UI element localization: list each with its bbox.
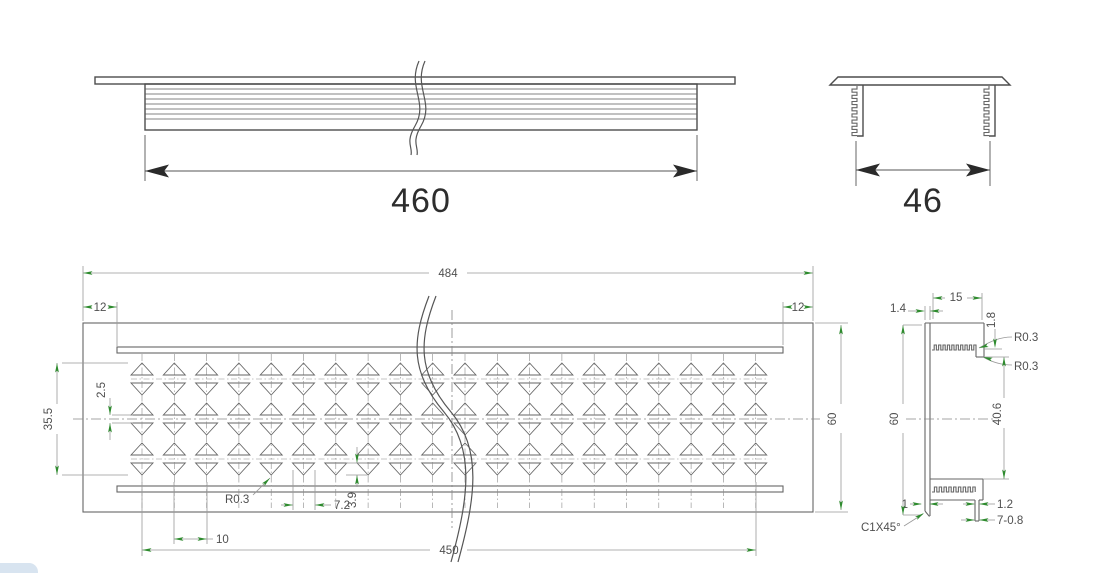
end-view-dim-lines bbox=[856, 141, 990, 186]
ui-artifact bbox=[0, 563, 38, 573]
section-fin-spec-label: 7-0.8 bbox=[997, 515, 1023, 527]
plan-corner-radius-label: R0.3 bbox=[225, 494, 249, 506]
plan-pitch-label: 10 bbox=[216, 534, 229, 546]
section-flange-width-label: 15 bbox=[950, 292, 963, 304]
dimension-arrows bbox=[55, 164, 1006, 552]
plan-hole-height-label: 3.9 bbox=[347, 492, 359, 508]
section-tab-width-label: 1.2 bbox=[997, 499, 1013, 511]
side-view-body bbox=[145, 84, 697, 130]
plan-top-slot bbox=[117, 347, 783, 353]
end-view-top-plate bbox=[830, 77, 1010, 85]
side-view-fin-lines bbox=[145, 89, 697, 119]
section-radius-bottom-label: R0.3 bbox=[1014, 361, 1038, 373]
end-view-width-label: 46 bbox=[903, 182, 943, 220]
plan-bottom-slot bbox=[117, 486, 783, 492]
side-view: 460 bbox=[95, 61, 735, 220]
side-view-dim-lines bbox=[145, 135, 697, 181]
dimension-arrowhead bbox=[804, 305, 814, 309]
plan-view: 484 12 12 35.5 2.5 R0.3 7.2 3.9 10 450 6… bbox=[43, 266, 848, 562]
section-lip-thickness-label: 1.8 bbox=[986, 312, 998, 328]
plan-overall-length-label: 484 bbox=[438, 268, 458, 280]
left-leg-serration bbox=[852, 86, 857, 136]
plan-right-margin-label: 12 bbox=[792, 302, 805, 314]
section-radius-top-label: R0.3 bbox=[1014, 332, 1038, 344]
section-view: 15 1.4 1.8 R0.3 R0.3 40.6 60 1 1.2 7-0.8… bbox=[861, 292, 1038, 534]
plan-left-margin-label: 12 bbox=[94, 302, 107, 314]
column-centerlines bbox=[142, 354, 756, 508]
plan-pattern-length-label: 450 bbox=[439, 545, 458, 557]
section-profile bbox=[925, 323, 984, 521]
section-chamfer-label: C1X45° bbox=[861, 522, 901, 534]
end-view: 46 bbox=[830, 77, 1010, 220]
plan-pattern-height-label: 35.5 bbox=[43, 408, 55, 430]
side-view-length-label: 460 bbox=[391, 182, 451, 220]
dimension-arrowhead bbox=[915, 511, 925, 519]
section-top-thickness-label: 1.4 bbox=[890, 303, 907, 315]
drawing-canvas: 460 46 bbox=[0, 0, 1102, 573]
end-view-left-leg bbox=[857, 85, 863, 136]
plan-width-label: 60 bbox=[827, 413, 839, 426]
side-view-break-lines bbox=[410, 61, 426, 155]
section-height-label: 60 bbox=[889, 413, 901, 426]
perforation-pattern bbox=[131, 354, 767, 508]
section-inner-height-label: 40.6 bbox=[992, 403, 1004, 425]
right-leg-serration bbox=[984, 86, 989, 136]
plan-center-gap-label: 2.5 bbox=[96, 382, 108, 398]
technical-drawing-page: { "drawing": { "top_view": { "length_lab… bbox=[0, 0, 1102, 573]
plan-break-lines bbox=[417, 296, 473, 562]
end-view-right-leg bbox=[989, 85, 995, 136]
